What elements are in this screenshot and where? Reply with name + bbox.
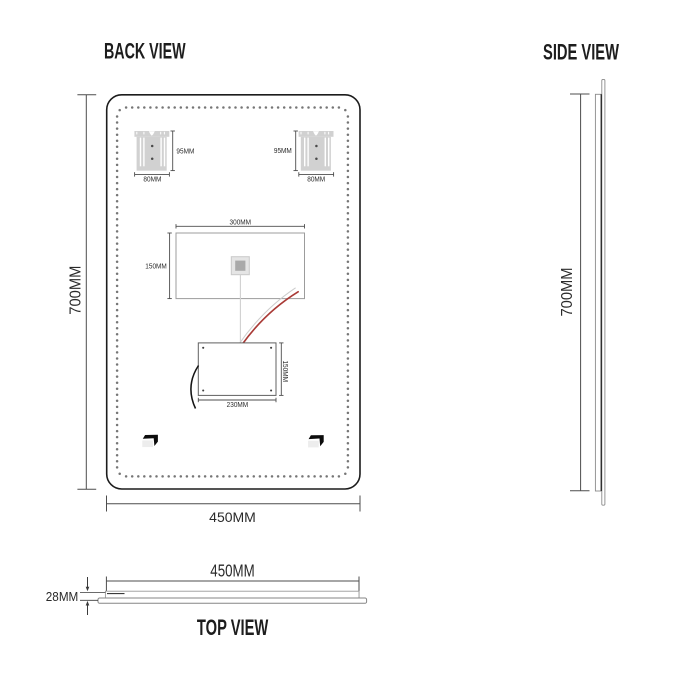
svg-text:300MM: 300MM	[230, 219, 252, 227]
svg-text:95MM: 95MM	[176, 148, 194, 156]
svg-text:BACK VIEW: BACK VIEW	[104, 38, 186, 63]
svg-text:450MM: 450MM	[210, 562, 254, 581]
svg-text:80MM: 80MM	[143, 176, 161, 184]
svg-text:SIDE VIEW: SIDE VIEW	[543, 41, 619, 66]
svg-text:450MM: 450MM	[209, 509, 256, 525]
svg-text:95MM: 95MM	[274, 148, 292, 156]
svg-text:28MM: 28MM	[46, 589, 78, 604]
svg-text:150MM: 150MM	[281, 360, 289, 382]
svg-text:TOP VIEW: TOP VIEW	[197, 616, 269, 641]
svg-text:230MM: 230MM	[227, 402, 249, 410]
svg-text:700MM: 700MM	[67, 266, 85, 315]
svg-text:80MM: 80MM	[307, 176, 325, 184]
svg-text:700MM: 700MM	[559, 267, 577, 316]
svg-text:150MM: 150MM	[145, 263, 167, 271]
